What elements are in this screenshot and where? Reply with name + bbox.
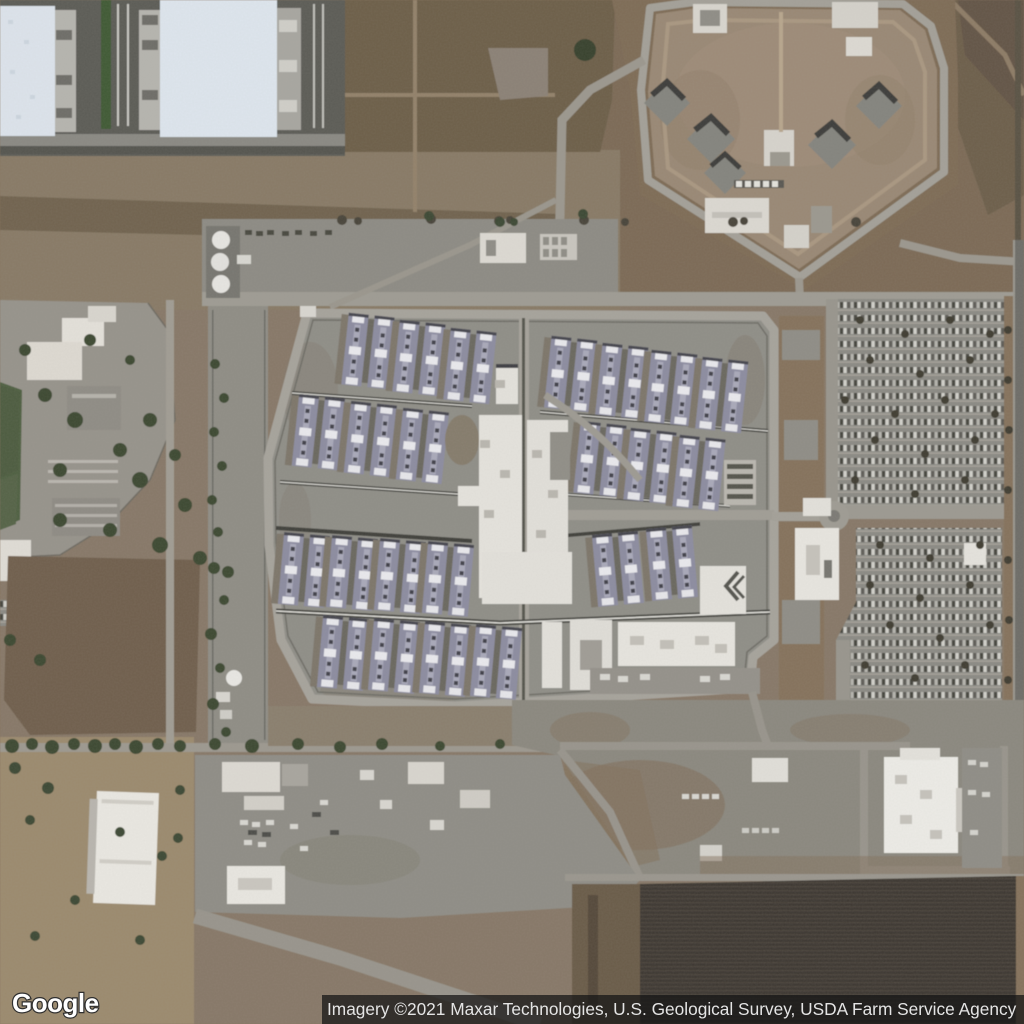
svg-text:Google: Google xyxy=(12,988,99,1018)
svg-text:Imagery ©2021 Maxar Technologi: Imagery ©2021 Maxar Technologies, U.S. G… xyxy=(327,999,1017,1019)
